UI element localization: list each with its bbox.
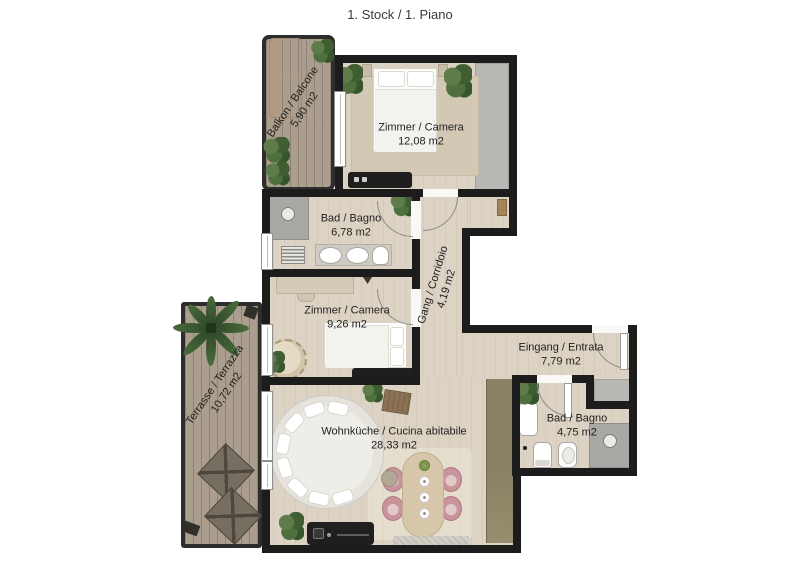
knob <box>354 177 359 182</box>
window-bedroom-small <box>261 324 273 376</box>
room-label-bedroom-large: Zimmer / Camera 12,08 m2 <box>378 121 464 150</box>
knob <box>362 177 367 182</box>
wall <box>262 189 517 197</box>
corridor-shelf <box>497 199 507 216</box>
room-name: Bad / Bagno <box>547 412 608 426</box>
bed-headboard <box>374 63 436 69</box>
desk <box>276 276 354 294</box>
room-label-living-kitchen: Wohnküche / Cucina abitabile 28,33 m2 <box>321 425 466 454</box>
window-bathroom-large <box>261 233 273 270</box>
bed-pillow <box>390 347 404 366</box>
wall <box>509 55 517 236</box>
window-living <box>261 461 273 490</box>
sink-faucet <box>327 533 331 537</box>
dining-chair <box>382 496 404 521</box>
pouf <box>381 470 398 487</box>
room-name: Zimmer / Camera <box>304 304 390 318</box>
door-opening-bedroom-large <box>423 189 458 197</box>
room-name: Zimmer / Camera <box>378 121 464 135</box>
sink <box>346 247 369 264</box>
room-label-entrance: Eingang / Entrata 7,79 m2 <box>518 341 603 370</box>
bed-pillow <box>390 327 404 346</box>
room-area: 7,79 m2 <box>518 355 603 369</box>
wall <box>462 228 470 333</box>
plate <box>419 476 430 487</box>
terrace-door <box>261 391 273 461</box>
vanity-counter <box>315 244 392 266</box>
nightstand <box>362 64 372 77</box>
bed-pillow <box>378 71 405 87</box>
room-label-bathroom-large: Bad / Bagno 6,78 m2 <box>321 212 382 241</box>
room-name: Bad / Bagno <box>321 212 382 226</box>
wall <box>512 468 637 476</box>
sink <box>519 402 538 436</box>
room-label-bedroom-small: Zimmer / Camera 9,26 m2 <box>304 304 390 333</box>
toilet <box>533 442 552 468</box>
wall <box>262 545 521 553</box>
wall <box>462 228 517 236</box>
counter-edge <box>337 534 369 536</box>
doormat <box>381 389 411 415</box>
toilet <box>372 246 389 265</box>
room-area: 12,08 m2 <box>378 135 464 149</box>
plant <box>265 162 290 186</box>
dresser-tv-console <box>348 172 412 188</box>
towel-radiator <box>281 246 305 264</box>
wall <box>512 375 520 476</box>
bed-pillow <box>407 71 434 87</box>
bidet <box>558 442 577 468</box>
dining-table <box>402 452 444 538</box>
room-area: 9,26 m2 <box>304 318 390 332</box>
wall <box>586 401 637 409</box>
plate <box>419 492 430 503</box>
entrance-door-opening <box>592 325 628 333</box>
plant-center <box>206 323 216 333</box>
room-area: 28,33 m2 <box>321 439 466 453</box>
plate <box>419 508 430 519</box>
room-name: Eingang / Entrata <box>518 341 603 355</box>
floor-drain <box>523 446 527 450</box>
plant <box>444 64 472 100</box>
kitchen-island <box>307 522 374 545</box>
room-area: 6,78 m2 <box>321 226 382 240</box>
wall <box>335 55 517 63</box>
bidet-basin <box>562 447 575 464</box>
door-opening-bathroom-small <box>537 375 572 383</box>
room-area: 4,75 m2 <box>547 426 608 440</box>
balcony-door <box>334 91 346 167</box>
cooktop <box>313 528 324 539</box>
room-label-bathroom-small: Bad / Bagno 4,75 m2 <box>547 412 608 441</box>
toilet-tank <box>535 460 550 466</box>
sink <box>319 247 342 264</box>
wardrobe-bedroom-large <box>475 63 509 191</box>
wall <box>262 377 420 385</box>
plant <box>279 512 304 542</box>
floor-plan: 1. Stock / 1. Piano <box>0 0 800 565</box>
wall <box>513 468 521 553</box>
desk-chair <box>297 293 315 302</box>
entrance-niche-closet <box>594 379 630 403</box>
wall <box>262 269 420 277</box>
room-name: Wohnküche / Cucina abitabile <box>321 425 466 439</box>
tall-cabinet-olive <box>486 379 513 543</box>
plant <box>362 383 383 403</box>
plant <box>311 39 334 64</box>
table-decor <box>419 460 430 471</box>
plan-title: 1. Stock / 1. Piano <box>0 7 800 22</box>
entrance-door-leaf <box>620 333 628 370</box>
